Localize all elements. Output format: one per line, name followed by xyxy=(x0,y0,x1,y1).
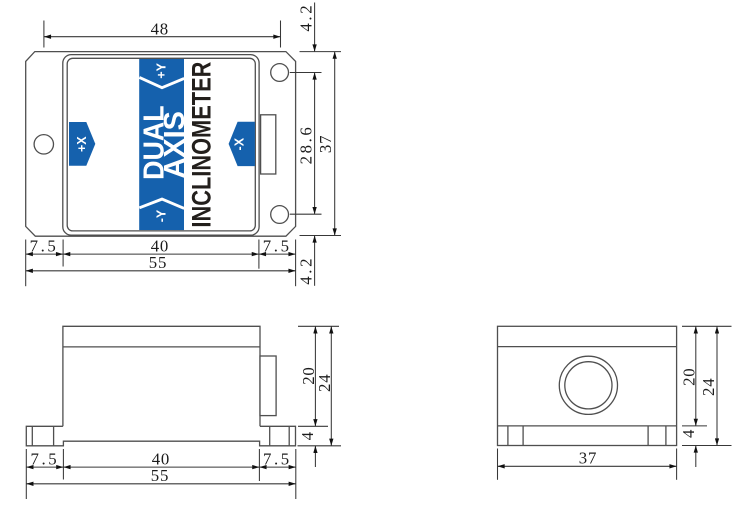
svg-text:4: 4 xyxy=(298,431,317,440)
svg-text:+Y: +Y xyxy=(154,62,168,78)
svg-text:48: 48 xyxy=(151,20,169,39)
svg-text:55: 55 xyxy=(149,253,167,272)
svg-text:4.2: 4.2 xyxy=(296,256,315,285)
svg-text:-X: -X xyxy=(233,137,247,150)
svg-text:-Y: -Y xyxy=(154,209,168,222)
svg-text:55: 55 xyxy=(151,466,169,485)
svg-text:28.6: 28.6 xyxy=(297,125,316,165)
svg-text:24: 24 xyxy=(315,374,334,392)
svg-text:37: 37 xyxy=(316,135,335,153)
svg-text:INCLINOMETER: INCLINOMETER xyxy=(186,62,216,228)
svg-text:+X: +X xyxy=(75,136,89,152)
svg-text:7.5: 7.5 xyxy=(263,236,292,255)
svg-text:37: 37 xyxy=(579,449,597,468)
svg-text:7.5: 7.5 xyxy=(263,449,292,468)
svg-text:4.2: 4.2 xyxy=(297,3,316,32)
svg-text:20: 20 xyxy=(679,368,698,386)
svg-text:7.5: 7.5 xyxy=(30,236,59,255)
svg-text:4: 4 xyxy=(679,429,698,438)
svg-text:7.5: 7.5 xyxy=(31,449,60,468)
svg-text:24: 24 xyxy=(699,378,718,396)
